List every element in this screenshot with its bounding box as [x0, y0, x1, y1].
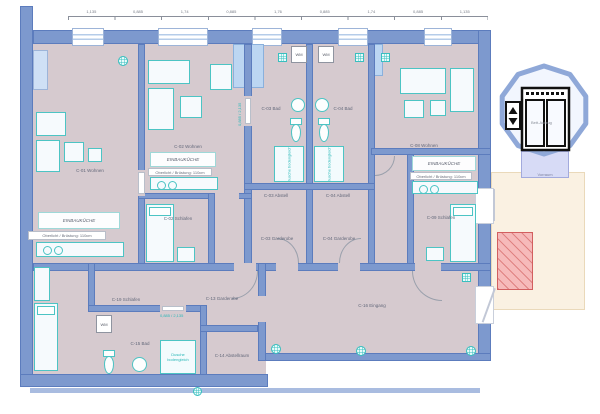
- interior-wall: [200, 325, 258, 332]
- window[interactable]: [72, 28, 104, 46]
- toilet-icon[interactable]: [288, 118, 304, 142]
- exterior-cutout: [266, 361, 478, 374]
- sofa-icon[interactable]: [400, 68, 446, 94]
- sill-note: Oberlicht / Brüstung: 110cm: [410, 172, 472, 180]
- ceiling-spot-icon[interactable]: [355, 53, 364, 62]
- kitchen-unit-label: EINBAUKÜCHE: [412, 156, 476, 171]
- dimension-label: 0,885: [115, 9, 162, 28]
- exterior-wall-bottom-hall: [262, 353, 491, 361]
- sill-note: Oberlicht / Brüstung: 110cm: [148, 168, 212, 176]
- shower-icon[interactable]: Dusche bodengleich: [274, 146, 304, 182]
- dimension-label: 1,74: [161, 9, 208, 28]
- interior-wall: [88, 305, 207, 312]
- ceiling-spot-icon[interactable]: [381, 53, 390, 62]
- pillow: [37, 306, 55, 315]
- kitchen-counter-icon[interactable]: [412, 181, 478, 194]
- window[interactable]: [338, 28, 368, 46]
- dimension-label: 1,74: [348, 9, 395, 28]
- sink-icon[interactable]: [315, 98, 329, 112]
- window[interactable]: [158, 28, 208, 46]
- room-label: C-16 Eingang: [358, 303, 386, 308]
- sofa-icon[interactable]: [36, 140, 60, 172]
- sink-icon[interactable]: [132, 357, 147, 372]
- sofa-icon[interactable]: [36, 112, 66, 136]
- shower-label: Dusche bodengleich: [327, 146, 332, 182]
- door-opening[interactable]: [258, 296, 266, 322]
- ceiling-spot-icon[interactable]: [278, 53, 287, 62]
- kitchen-counter-icon[interactable]: [36, 242, 124, 257]
- door-opening[interactable]: [276, 263, 298, 271]
- door-opening[interactable]: [215, 193, 239, 199]
- shaft-hatch[interactable]: [497, 232, 533, 290]
- table-icon[interactable]: [177, 247, 195, 262]
- dimension-label: 0,885: [301, 9, 348, 28]
- door-leaf[interactable]: [245, 98, 251, 124]
- toilet-icon[interactable]: [101, 350, 117, 374]
- elevator-label: Bett-Aufzug: [531, 120, 552, 125]
- bed-icon[interactable]: [146, 204, 174, 262]
- table-icon[interactable]: [404, 100, 424, 118]
- dimension-label: 1,135: [441, 9, 488, 28]
- elevator-icon[interactable]: [497, 62, 591, 158]
- door-opening[interactable]: [234, 263, 256, 271]
- room-label: C-02 Wohnen: [174, 144, 202, 149]
- armchair-icon[interactable]: [88, 148, 102, 162]
- exterior-wall-bottom-left: [20, 374, 268, 387]
- room-label: C-08 Wohnen: [410, 143, 438, 148]
- floor-plan-canvas: 1,135 0,885 1,74 0,885 1,76 0,885 1,74 0…: [0, 0, 600, 414]
- sink-icon[interactable]: [291, 98, 305, 112]
- bed-icon[interactable]: [34, 303, 58, 371]
- washing-machine-icon[interactable]: WM: [96, 315, 112, 333]
- shower-icon[interactable]: Dusche bodengleich: [160, 340, 196, 374]
- exterior-wall-left: [20, 6, 33, 387]
- door-leaf[interactable]: [493, 189, 495, 221]
- dimension-label: 0,885: [208, 9, 255, 28]
- sofa-icon[interactable]: [450, 68, 474, 112]
- interior-wall: [244, 44, 252, 271]
- pillow: [149, 207, 171, 216]
- room-label: C-04 Abstell: [326, 193, 350, 198]
- toilet-icon[interactable]: [316, 118, 332, 142]
- shower-label: Dusche bodengleich: [161, 352, 195, 362]
- kitchen-counter-icon[interactable]: [150, 177, 218, 190]
- room-label: C-19 Schlafen: [112, 297, 141, 302]
- pillow: [453, 207, 473, 216]
- terrace-edge: [30, 388, 480, 393]
- interior-wall: [200, 305, 207, 375]
- wardrobe-icon[interactable]: [34, 267, 50, 301]
- door-leaf[interactable]: [138, 172, 145, 194]
- room-label: C-14 Abstellraum: [215, 353, 250, 358]
- dimension-line: 1,135 0,885 1,74 0,885 1,76 0,885 1,74 0…: [68, 16, 488, 28]
- sofa-icon[interactable]: [148, 60, 190, 84]
- cabinet-icon[interactable]: [210, 64, 232, 90]
- window[interactable]: [424, 28, 452, 46]
- shower-label: Dusche bodengleich: [287, 146, 292, 182]
- interior-wall: [306, 44, 313, 271]
- room-label: C-02 Schlafen: [164, 216, 193, 221]
- room-label: C-13 Garderobe: [206, 296, 239, 301]
- room-label: C-09 Schlafen: [427, 215, 456, 220]
- table-icon[interactable]: [426, 247, 444, 261]
- door-leaf[interactable]: [162, 306, 184, 311]
- room-label: C-03 Garderobe: [261, 236, 294, 241]
- window-left-wall[interactable]: [33, 50, 48, 90]
- ceiling-spot-icon[interactable]: [462, 273, 471, 282]
- room-label: C-01 Wohnen: [76, 168, 104, 173]
- ceiling-spot-icon[interactable]: [466, 346, 476, 356]
- room-label: C-04 Bad: [333, 106, 352, 111]
- door-spec-label: 0,885 / 2,135: [237, 98, 242, 126]
- interior-wall: [244, 183, 375, 190]
- door-spec-label: 0,885 / 2,135: [160, 313, 183, 318]
- bed-icon[interactable]: [450, 204, 476, 262]
- room-label: C-03 Abstell: [264, 193, 288, 198]
- sill-note: Oberlicht / Brüstung: 110cm: [28, 231, 106, 240]
- sofa-icon[interactable]: [148, 88, 174, 130]
- room-label: C-03 Bad: [261, 106, 280, 111]
- interior-wall: [138, 44, 145, 271]
- ceiling-spot-icon[interactable]: [118, 56, 128, 66]
- dimension-label: 1,76: [255, 9, 302, 28]
- washing-machine-icon[interactable]: WM: [318, 46, 334, 63]
- dimension-label: 1,135: [68, 9, 115, 28]
- kitchen-unit-label: EINBAUKÜCHE: [150, 152, 216, 167]
- ceiling-spot-icon[interactable]: [193, 387, 202, 396]
- dimension-label: 0,885: [395, 9, 442, 28]
- shower-icon[interactable]: Dusche bodengleich: [314, 146, 344, 182]
- washing-machine-icon[interactable]: WM: [291, 46, 307, 63]
- door-opening[interactable]: [415, 263, 441, 271]
- interior-wall: [368, 44, 375, 271]
- room-label: C-15 Bad: [130, 341, 149, 346]
- interior-wall: [208, 193, 215, 265]
- ceiling-spot-icon[interactable]: [271, 344, 281, 354]
- table-icon[interactable]: [180, 96, 202, 118]
- interior-wall: [371, 148, 491, 155]
- kitchen-unit-label: EINBAUKÜCHE: [38, 212, 120, 229]
- room-label: C-04 Garderobe: [323, 236, 356, 241]
- ceiling-spot-icon[interactable]: [356, 346, 366, 356]
- table-icon[interactable]: [64, 142, 84, 162]
- armchair-icon[interactable]: [430, 100, 446, 116]
- door-opening[interactable]: [338, 263, 360, 271]
